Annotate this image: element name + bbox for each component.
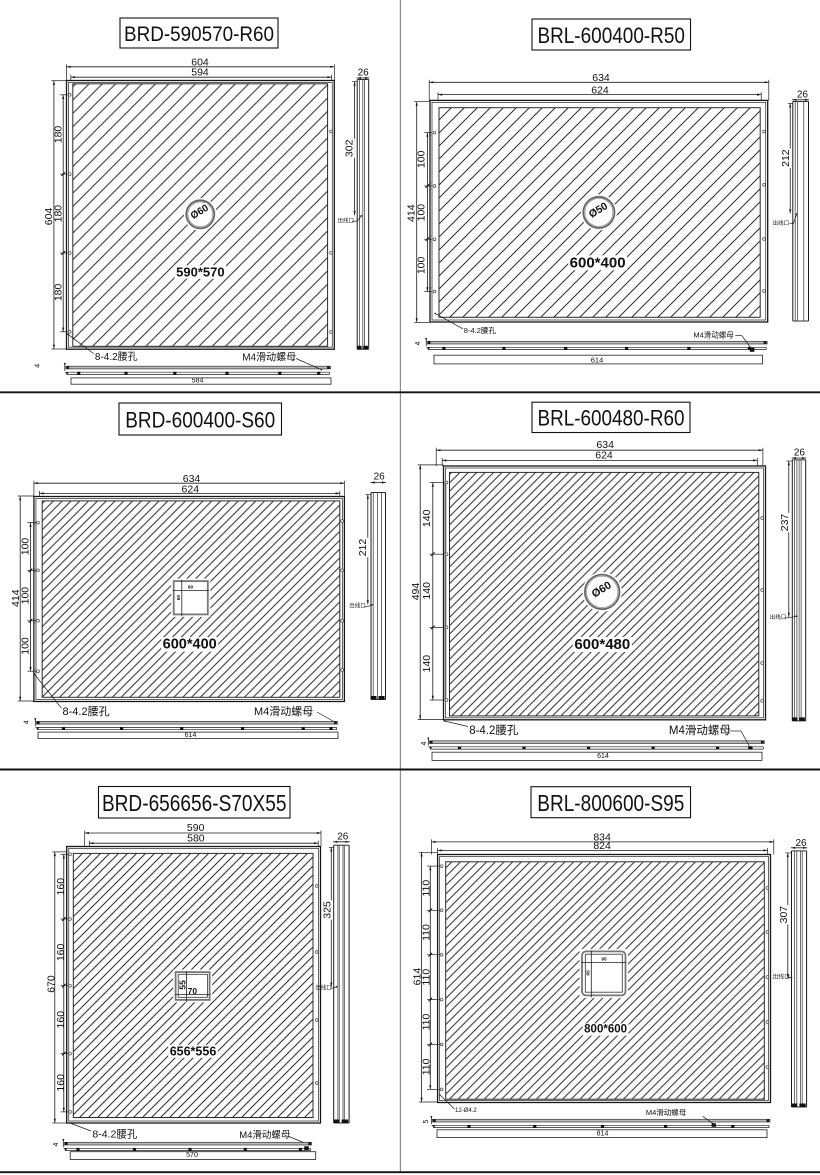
svg-text:4: 4 (34, 364, 41, 368)
svg-text:110: 110 (420, 924, 432, 941)
svg-text:140: 140 (421, 655, 433, 673)
svg-text:160: 160 (55, 943, 67, 961)
svg-text:BRL-600480-R60: BRL-600480-R60 (538, 406, 685, 431)
svg-text:212: 212 (780, 149, 792, 167)
svg-text:M4滑动螺母: M4滑动螺母 (693, 330, 734, 340)
svg-text:580: 580 (187, 832, 205, 844)
svg-text:M4滑动螺母: M4滑动螺母 (669, 724, 731, 737)
svg-text:BRD-600400-S60: BRD-600400-S60 (125, 407, 275, 432)
svg-text:212: 212 (357, 539, 369, 557)
svg-text:634: 634 (592, 72, 610, 84)
svg-text:180: 180 (52, 126, 64, 144)
svg-text:100: 100 (415, 256, 427, 274)
svg-text:160: 160 (55, 1074, 67, 1092)
svg-text:出线口: 出线口 (315, 983, 332, 991)
svg-text:55: 55 (178, 980, 188, 990)
svg-text:26: 26 (794, 448, 806, 459)
svg-text:26: 26 (358, 68, 370, 79)
svg-text:BRL-800600-S95: BRL-800600-S95 (537, 790, 684, 816)
svg-text:8-4.2腰孔: 8-4.2腰孔 (469, 724, 519, 737)
svg-text:302: 302 (344, 139, 356, 157)
svg-text:584: 584 (192, 378, 204, 385)
svg-text:8-4.2腰孔: 8-4.2腰孔 (92, 1128, 137, 1141)
svg-text:594: 594 (191, 67, 209, 79)
svg-text:60: 60 (176, 595, 182, 601)
svg-text:95: 95 (585, 970, 591, 976)
svg-text:出线口: 出线口 (337, 216, 354, 224)
svg-text:100: 100 (19, 587, 31, 605)
svg-text:出线口: 出线口 (770, 613, 787, 621)
svg-text:26: 26 (795, 838, 807, 849)
svg-text:12-Ø4.2: 12-Ø4.2 (455, 1108, 477, 1114)
svg-text:670: 670 (46, 975, 58, 993)
svg-text:5: 5 (423, 1119, 430, 1123)
svg-text:100: 100 (415, 150, 427, 168)
svg-text:出线口: 出线口 (772, 972, 790, 980)
svg-text:237: 237 (779, 514, 791, 532)
svg-text:140: 140 (421, 509, 433, 527)
svg-text:110: 110 (420, 880, 432, 897)
svg-text:614: 614 (185, 732, 197, 739)
svg-text:800*600: 800*600 (584, 1024, 627, 1036)
svg-text:8-4.2腰孔: 8-4.2腰孔 (95, 351, 138, 363)
svg-text:26: 26 (374, 472, 386, 483)
svg-text:出线口: 出线口 (773, 219, 790, 227)
svg-text:624: 624 (591, 84, 609, 96)
svg-text:325: 325 (322, 901, 334, 919)
svg-text:100: 100 (19, 637, 31, 655)
svg-text:M4滑动螺母: M4滑动螺母 (646, 1107, 687, 1117)
svg-text:140: 140 (421, 582, 433, 600)
svg-text:4: 4 (53, 1142, 60, 1146)
svg-text:624: 624 (182, 483, 200, 495)
svg-text:60: 60 (188, 585, 194, 591)
svg-text:600*400: 600*400 (570, 254, 626, 271)
svg-text:4: 4 (421, 741, 428, 745)
svg-text:656*556: 656*556 (170, 1044, 217, 1058)
svg-text:8-4.2腰孔: 8-4.2腰孔 (63, 705, 110, 718)
svg-text:出线口: 出线口 (349, 601, 366, 609)
svg-text:70: 70 (188, 986, 198, 996)
svg-text:BRL-600400-R50: BRL-600400-R50 (537, 23, 685, 48)
svg-text:4: 4 (415, 342, 422, 346)
svg-text:100: 100 (19, 538, 31, 556)
svg-text:110: 110 (420, 969, 432, 986)
svg-text:8-4.2腰孔: 8-4.2腰孔 (464, 326, 497, 335)
svg-text:BRD-590570-R60: BRD-590570-R60 (124, 22, 274, 46)
svg-text:BRD-656656-S70X55: BRD-656656-S70X55 (102, 790, 287, 816)
svg-text:M4滑动螺母: M4滑动螺母 (242, 351, 296, 363)
svg-text:600*480: 600*480 (574, 636, 630, 653)
svg-text:614: 614 (597, 753, 609, 760)
svg-text:160: 160 (55, 1011, 67, 1029)
svg-text:160: 160 (55, 878, 67, 896)
svg-text:110: 110 (420, 1058, 432, 1075)
svg-text:95: 95 (601, 957, 607, 963)
svg-text:110: 110 (420, 1013, 432, 1030)
svg-text:4: 4 (24, 720, 31, 724)
svg-text:M4滑动螺母: M4滑动螺母 (254, 705, 313, 718)
svg-text:26: 26 (337, 832, 349, 843)
svg-text:M4滑动螺母: M4滑动螺母 (239, 1130, 290, 1141)
svg-text:180: 180 (52, 205, 64, 223)
svg-text:590*570: 590*570 (176, 265, 224, 280)
svg-text:814: 814 (597, 1130, 609, 1137)
svg-text:570: 570 (186, 1152, 198, 1159)
svg-text:824: 824 (593, 840, 611, 852)
svg-text:600*400: 600*400 (163, 636, 217, 652)
svg-text:180: 180 (52, 283, 64, 301)
svg-text:26: 26 (797, 89, 809, 100)
svg-text:100: 100 (415, 204, 427, 222)
svg-text:624: 624 (595, 449, 613, 461)
svg-text:307: 307 (778, 906, 790, 924)
svg-text:614: 614 (591, 355, 604, 364)
